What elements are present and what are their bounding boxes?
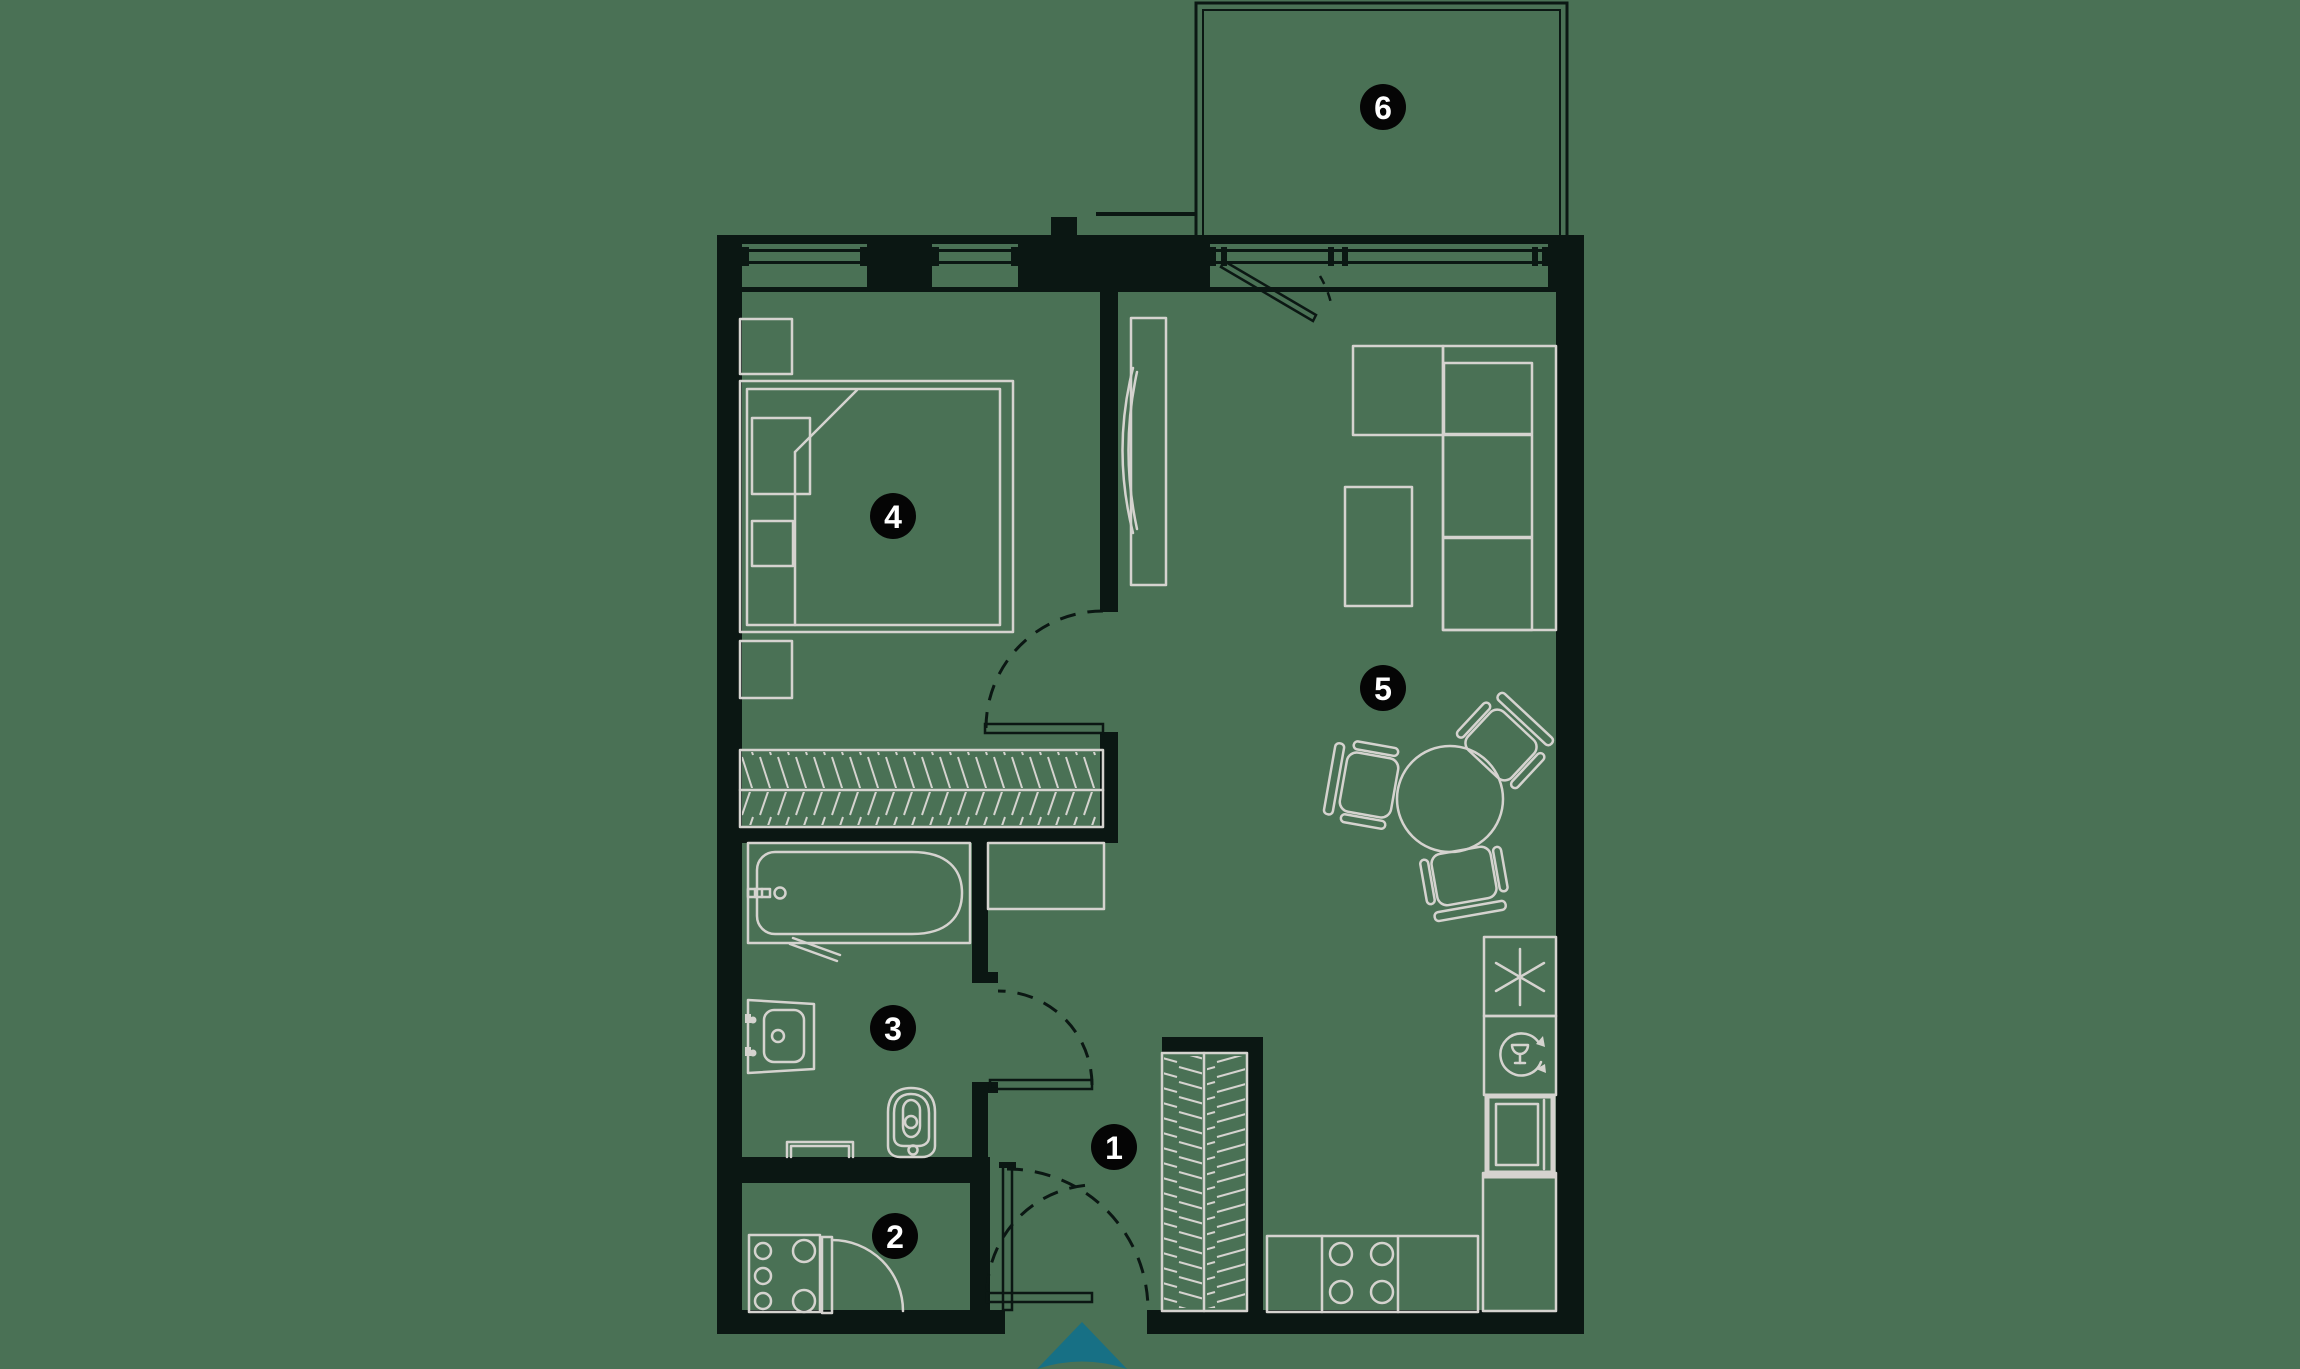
oven-unit — [1487, 1096, 1553, 1173]
floor-plan-page: 1 2 3 4 5 6 — [0, 0, 2300, 1369]
stove-unit — [749, 1235, 820, 1312]
kitchen-tall-cabinet — [1483, 1173, 1556, 1311]
utility-room — [749, 1235, 820, 1312]
svg-text:4: 4 — [884, 499, 902, 535]
svg-text:6: 6 — [1374, 90, 1392, 126]
door-jamb-bathroom-bottom — [972, 1082, 998, 1093]
overhang-line — [1096, 212, 1196, 216]
wall-bedroom-bathroom — [742, 827, 1118, 843]
wine-glass-icon — [1512, 1045, 1528, 1054]
room-marker-2[interactable]: 2 — [872, 1213, 918, 1259]
svg-text:5: 5 — [1374, 671, 1392, 707]
bedroom-window-2 — [932, 247, 1018, 266]
living-room-window — [1210, 247, 1548, 266]
nightstand-top — [740, 319, 792, 374]
burner — [1371, 1281, 1393, 1303]
sink-faucet — [772, 1030, 784, 1042]
svg-text:3: 3 — [884, 1011, 902, 1047]
room-marker-5[interactable]: 5 — [1360, 665, 1406, 711]
entrance-door — [983, 1162, 1148, 1310]
wall-top-pier-2 — [1018, 235, 1210, 292]
hallway — [988, 843, 1247, 1311]
wall-bottom-left — [717, 1310, 1005, 1334]
wall-wardrobe-right — [1248, 1037, 1263, 1310]
wall-bedroom-living-upper — [1100, 292, 1118, 612]
wall-wardrobe-top — [1162, 1037, 1263, 1053]
blanket-fold — [795, 390, 857, 452]
wall-top-corner — [1548, 235, 1584, 292]
living-room-furniture — [1322, 346, 1558, 923]
dining-chair-2 — [1322, 738, 1401, 830]
bedroom-window-1 — [742, 247, 867, 266]
towel-rail — [787, 1142, 853, 1157]
bathtub — [748, 843, 970, 943]
coffee-table — [1345, 487, 1412, 606]
kitchen-counter-hob — [1267, 1236, 1478, 1312]
floor-plan: 1 2 3 4 5 6 — [0, 0, 2300, 1369]
bath-mat — [790, 938, 840, 961]
toilet — [888, 1088, 935, 1157]
wall-bathroom-hall-upper — [972, 843, 988, 983]
wall-right — [1556, 235, 1584, 1334]
burner — [1330, 1243, 1352, 1265]
svg-text:1: 1 — [1105, 1130, 1123, 1166]
pillow-1 — [752, 418, 810, 494]
burner — [1330, 1281, 1352, 1303]
bedroom-wardrobe — [740, 750, 1103, 827]
svg-text:2: 2 — [886, 1219, 904, 1255]
kitchen — [1267, 937, 1556, 1312]
hall-wardrobe — [1162, 1053, 1247, 1311]
dining-set — [1322, 688, 1558, 923]
burner — [1371, 1243, 1393, 1265]
room-marker-3[interactable]: 3 — [870, 1005, 916, 1051]
bath-faucet — [748, 889, 770, 897]
sink-vanity — [745, 1000, 814, 1073]
room-marker-6[interactable]: 6 — [1360, 84, 1406, 130]
dining-table — [1397, 746, 1503, 852]
bathroom — [745, 843, 970, 1157]
vent-shaft-tab — [1051, 217, 1077, 235]
dining-chair-3 — [1419, 843, 1511, 922]
nightstand-bottom — [740, 641, 792, 698]
wall-utility-hall — [970, 1183, 990, 1310]
freezer-unit — [1484, 937, 1556, 1016]
wall-bathroom-utility — [742, 1157, 990, 1183]
room-marker-4[interactable]: 4 — [870, 493, 916, 539]
wall-top-pier-1 — [867, 235, 932, 292]
bathroom-door — [990, 991, 1092, 1089]
door-jamb-bathroom-top — [972, 972, 998, 983]
entrance-arrow-icon — [1037, 1322, 1127, 1369]
wall-bottom-right — [1147, 1310, 1584, 1334]
wall-left — [717, 235, 742, 1334]
dining-chair-1 — [1453, 688, 1558, 792]
hall-shelf — [988, 843, 1104, 909]
pillow-2 — [752, 521, 793, 566]
wall-bathroom-hall-lower — [972, 1082, 988, 1157]
dishwasher-unit — [1484, 1016, 1556, 1095]
room-marker-1[interactable]: 1 — [1091, 1124, 1137, 1170]
bedroom-door — [985, 611, 1103, 733]
tv-console — [1123, 318, 1167, 585]
